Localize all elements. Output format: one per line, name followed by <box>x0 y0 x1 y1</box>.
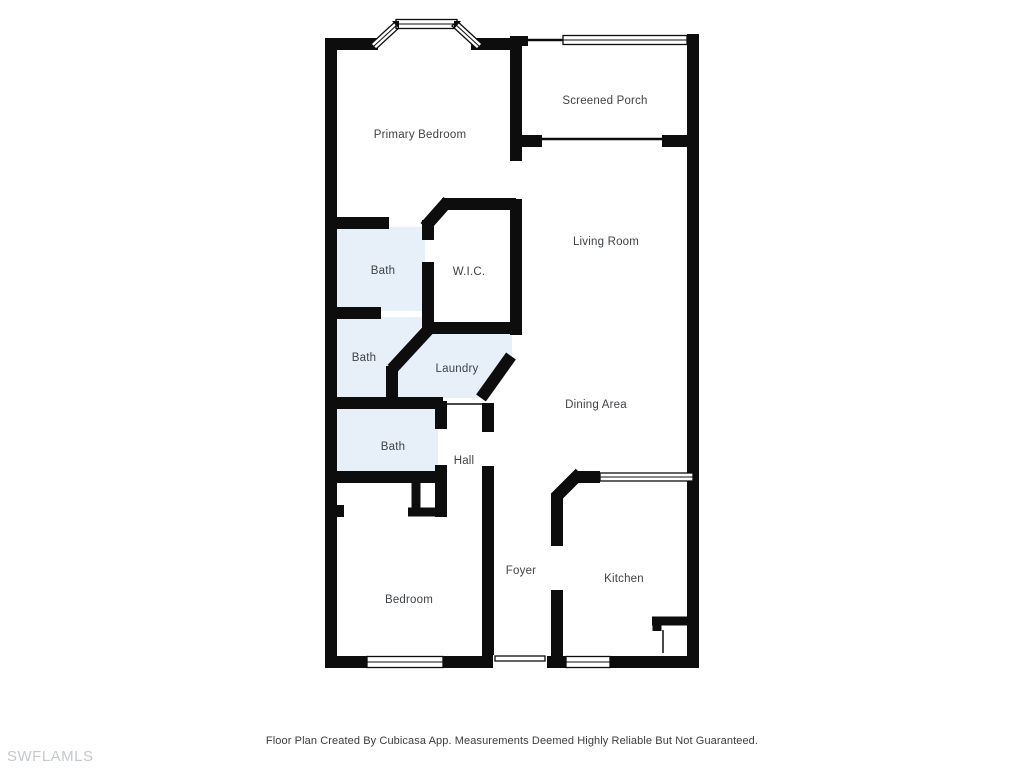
room-label-primary-bedroom: Primary Bedroom <box>374 129 466 141</box>
mls-watermark: SWFLAMLS <box>7 748 94 765</box>
wall-porch-top-corner <box>510 36 528 46</box>
room-label-hall: Hall <box>454 455 475 467</box>
room-label-kitchen: Kitchen <box>604 573 644 585</box>
bay-window-left-mullion <box>374 24 399 47</box>
room-label-bath-2: Bath <box>352 352 376 364</box>
room-label-wic: W.I.C. <box>453 266 486 278</box>
room-fill-bath-3 <box>334 408 438 472</box>
floor-plan-drawing: Primary Bedroom Screened Porch Living Ro… <box>0 0 1024 768</box>
room-label-dining-area: Dining Area <box>565 399 627 411</box>
room-label-foyer: Foyer <box>506 565 536 577</box>
room-label-screened-porch: Screened Porch <box>562 95 647 107</box>
bay-window-right-mullion <box>455 24 480 47</box>
foyer-entry-threshold <box>495 656 545 661</box>
room-label-bedroom: Bedroom <box>385 594 433 606</box>
room-label-laundry: Laundry <box>436 363 479 375</box>
disclaimer-text: Floor Plan Created By Cubicasa App. Meas… <box>0 735 1024 747</box>
room-label-bath-3: Bath <box>381 441 405 453</box>
room-label-bath-1: Bath <box>371 265 395 277</box>
floor-plan-page: Primary Bedroom Screened Porch Living Ro… <box>0 0 1024 768</box>
room-label-living-room: Living Room <box>573 236 639 248</box>
